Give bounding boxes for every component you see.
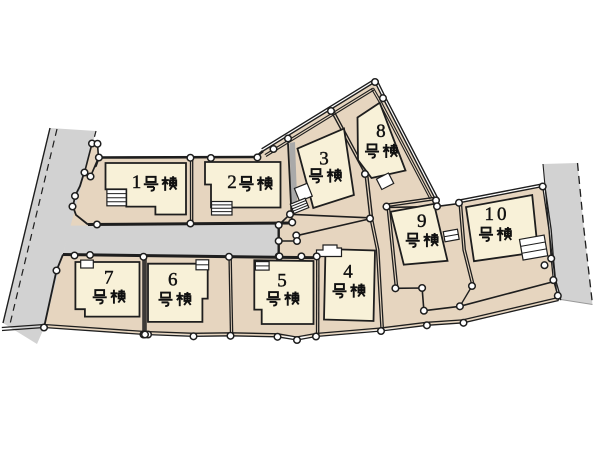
svg-text:8: 8 (376, 121, 386, 142)
svg-text:10: 10 (485, 204, 510, 225)
svg-text:4: 4 (343, 262, 353, 283)
svg-text:5: 5 (277, 271, 287, 292)
svg-text:3: 3 (319, 149, 329, 170)
svg-text:9: 9 (417, 211, 427, 232)
svg-text:6: 6 (168, 270, 178, 291)
svg-text:7: 7 (104, 268, 114, 289)
svg-text:1: 1 (132, 172, 142, 193)
svg-text:2: 2 (227, 172, 237, 193)
